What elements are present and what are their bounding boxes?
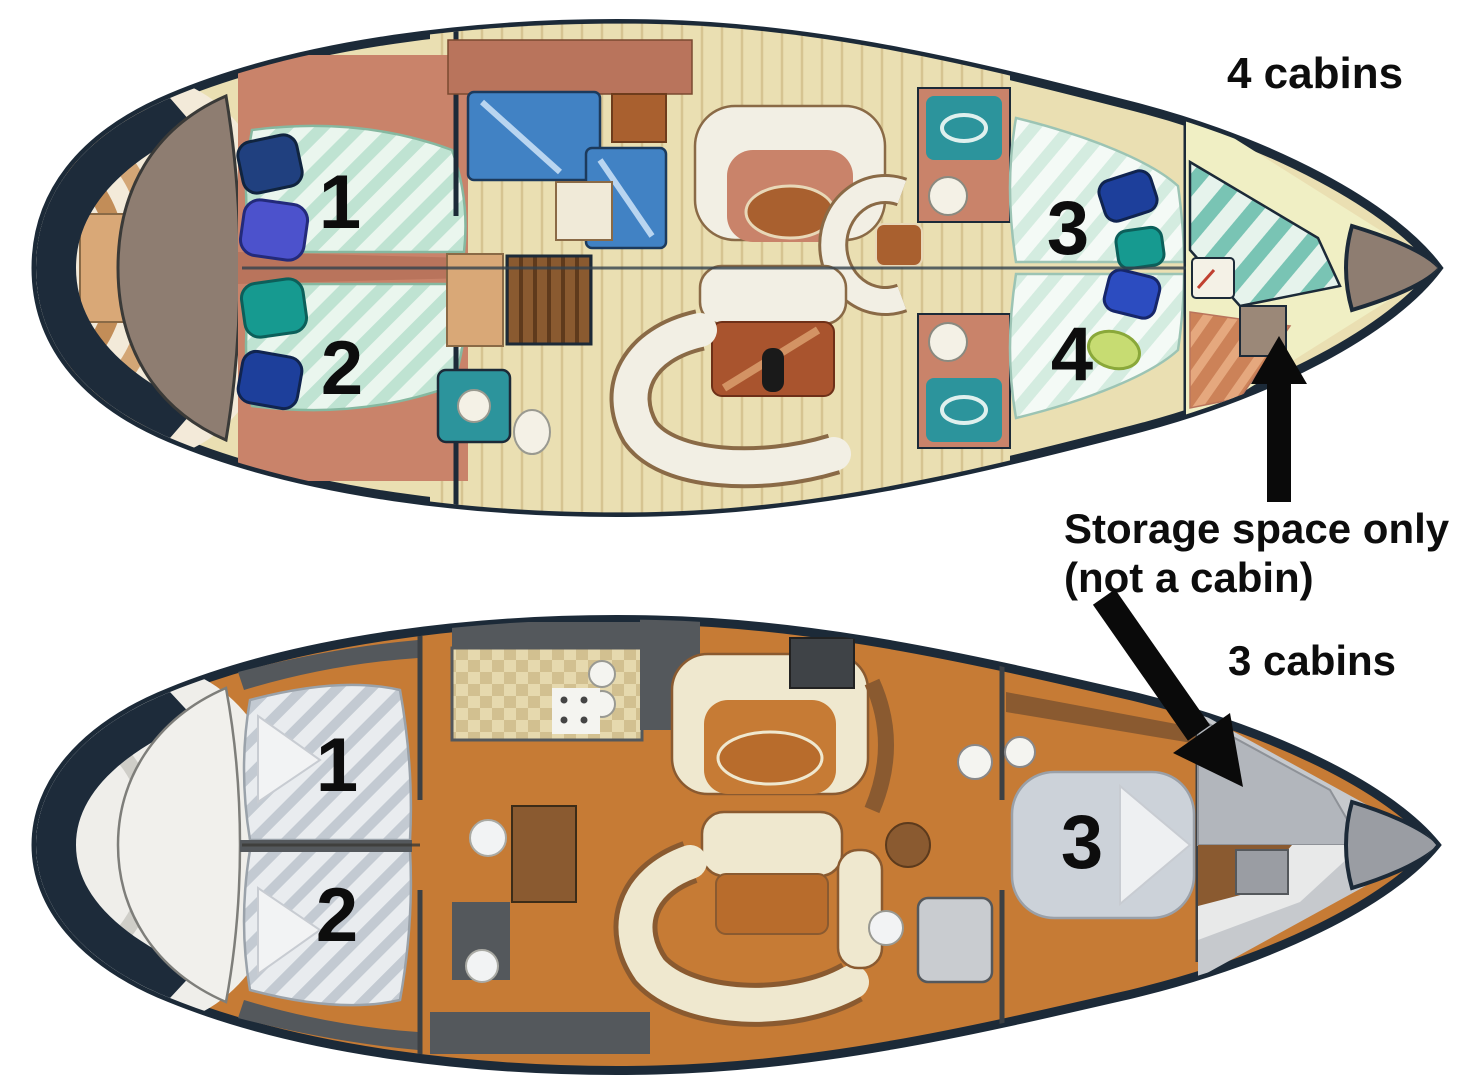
four-cabins-label: 4 cabins <box>1227 49 1403 98</box>
bottom-boat-plan: 1 2 3 <box>0 618 1440 1070</box>
storage-note-line2: (not a cabin) <box>1064 554 1314 601</box>
top-fwd-head-lower <box>918 314 1010 448</box>
bottom-cabin3-porthole <box>1005 737 1035 767</box>
top-cabin-1-number: 1 <box>319 160 361 245</box>
three-cabins-label: 3 cabins <box>1228 637 1396 684</box>
top-salon-sofa-upper <box>695 106 885 242</box>
bottom-bow-hatch <box>1236 850 1288 894</box>
top-mast-post <box>762 348 784 392</box>
top-cabin-4-number: 4 <box>1051 312 1093 397</box>
bottom-tv-cabinet <box>790 638 854 688</box>
bottom-cabin-1-number: 1 <box>316 723 358 808</box>
bottom-salon-table-upper <box>718 732 822 784</box>
bottom-cabin-2-number: 2 <box>316 873 358 958</box>
bottom-galley <box>452 618 700 740</box>
yacht-layouts-canvas: 1 2 3 4 <box>0 0 1484 1080</box>
bottom-salon-sofa-upper <box>672 638 886 810</box>
top-fwd-head-upper <box>918 88 1010 222</box>
bottom-bow-tip <box>1346 802 1440 888</box>
yacht-layout-comparison: 1 2 3 4 <box>0 0 1484 1080</box>
storage-note-line1: Storage space only <box>1064 505 1450 552</box>
bottom-cabin-3-number: 3 <box>1061 800 1103 885</box>
top-cabin-2-number: 2 <box>321 326 363 411</box>
top-bow-tip <box>1346 226 1440 310</box>
top-boat-plan: 1 2 3 4 <box>0 18 1440 518</box>
top-windlass <box>1192 258 1234 298</box>
top-cabin-3-number: 3 <box>1047 186 1089 271</box>
